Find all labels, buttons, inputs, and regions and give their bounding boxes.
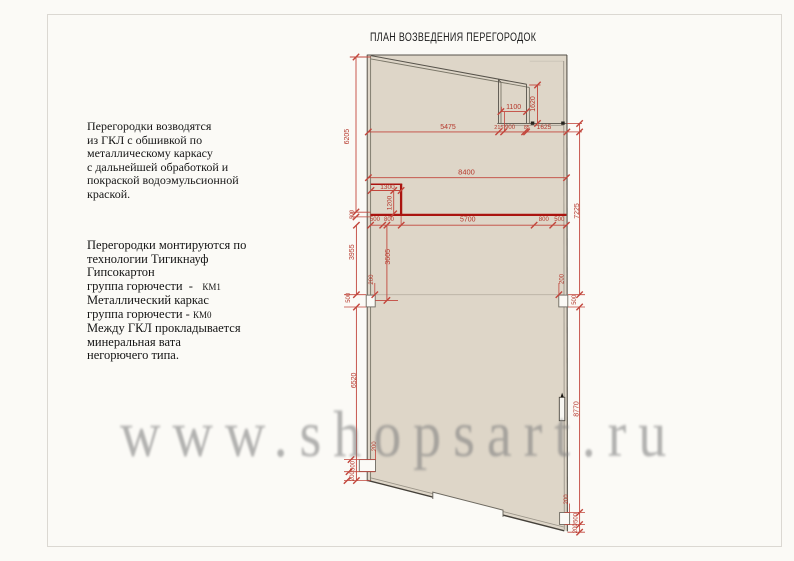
svg-text:500: 500 xyxy=(572,294,578,305)
svg-text:200: 200 xyxy=(559,273,565,284)
svg-text:200: 200 xyxy=(573,523,579,534)
svg-text:1100: 1100 xyxy=(506,104,521,111)
svg-text:3605: 3605 xyxy=(385,249,392,265)
svg-text:500: 500 xyxy=(554,217,565,223)
svg-text:500: 500 xyxy=(349,210,355,219)
svg-text:500: 500 xyxy=(573,512,579,523)
svg-text:3955: 3955 xyxy=(349,244,356,260)
svg-text:200: 200 xyxy=(350,471,356,482)
svg-text:900: 900 xyxy=(505,125,516,131)
svg-text:8400: 8400 xyxy=(458,168,475,177)
svg-text:5700: 5700 xyxy=(460,216,476,223)
svg-text:7225: 7225 xyxy=(574,203,581,219)
svg-text:1625: 1625 xyxy=(537,124,552,131)
svg-text:1620: 1620 xyxy=(530,96,537,112)
svg-text:6520: 6520 xyxy=(351,373,358,389)
svg-text:6205: 6205 xyxy=(344,129,351,145)
svg-text:500: 500 xyxy=(370,217,381,223)
svg-text:1200: 1200 xyxy=(387,195,394,210)
svg-text:200: 200 xyxy=(564,494,570,505)
svg-text:200: 200 xyxy=(369,274,375,285)
svg-text:215: 215 xyxy=(494,125,503,131)
svg-text:500: 500 xyxy=(346,292,352,303)
svg-text:800: 800 xyxy=(539,217,550,223)
svg-text:1300: 1300 xyxy=(380,184,395,191)
svg-text:85: 85 xyxy=(524,125,530,131)
svg-text:5475: 5475 xyxy=(440,124,456,131)
